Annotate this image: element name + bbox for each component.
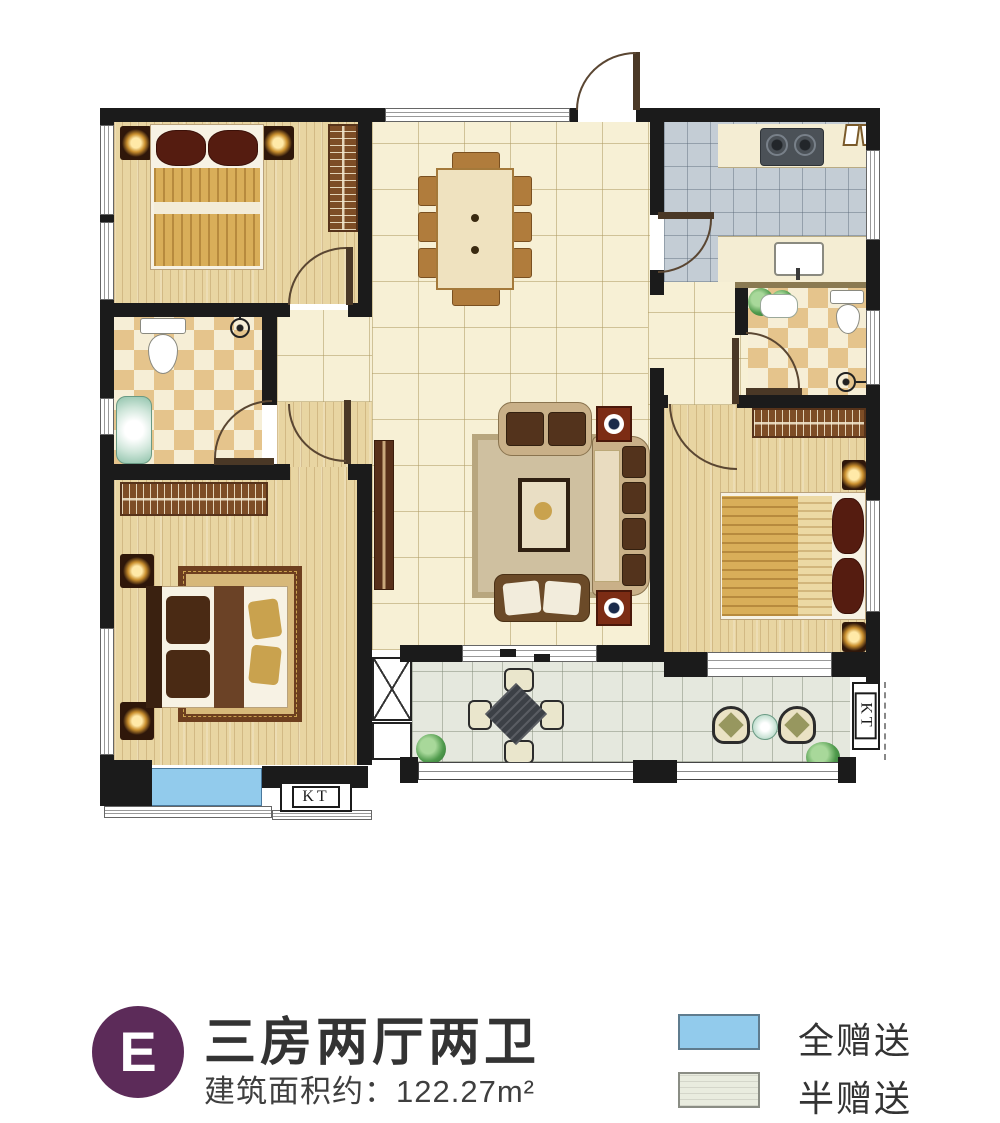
- tv-stand-icon: [374, 440, 394, 590]
- toilet-icon: [140, 318, 186, 334]
- dining-chair: [418, 212, 438, 242]
- hatch-strip: [884, 682, 886, 760]
- wall-segment: [400, 645, 462, 662]
- bench-cushion: [543, 580, 582, 615]
- wall-segment: [100, 215, 114, 222]
- bed-blanket: [722, 496, 798, 616]
- dining-chair: [452, 288, 500, 306]
- plan-area-label: 建筑面积约：122.27m²: [204, 1066, 535, 1111]
- window: [707, 652, 832, 677]
- floor-plan-page: KT KT E 三房两厅两卫 建筑面积约：122.27m² 全赠送 半赠送: [0, 0, 1000, 1123]
- wall-segment: [348, 464, 372, 480]
- wall-segment: [100, 464, 290, 480]
- wall-segment: [735, 288, 748, 335]
- bench-cushion: [502, 580, 541, 616]
- window: [866, 150, 880, 240]
- pillow-icon: [166, 596, 210, 644]
- coffee-table-decor: [534, 502, 552, 520]
- wall-segment: [348, 303, 372, 317]
- wall-segment: [866, 240, 880, 310]
- wall-segment: [650, 122, 664, 215]
- wall-segment: [664, 652, 707, 677]
- legend-label-half-gift: 半赠送: [798, 1070, 912, 1122]
- balcony-sliding-door: [462, 645, 597, 662]
- door-leaf: [214, 458, 274, 465]
- pillow-icon: [832, 498, 864, 554]
- wall-segment: [832, 652, 877, 677]
- nightstand-icon: [842, 460, 866, 490]
- nightstand-icon: [120, 126, 152, 160]
- wall-segment: [400, 757, 418, 783]
- wall-segment: [664, 395, 668, 408]
- window: [385, 108, 570, 122]
- shower-glass-icon: [116, 396, 152, 464]
- wall-segment: [735, 282, 866, 288]
- legend-swatch-half-gift: [678, 1072, 760, 1108]
- wall-segment: [100, 303, 290, 317]
- wall-segment: [838, 757, 856, 783]
- ac-unit-label: KT: [855, 692, 877, 739]
- shower-head-icon: [230, 318, 250, 338]
- sofa-cushion: [622, 482, 646, 514]
- door-leaf: [746, 388, 802, 395]
- wardrobe-icon: [328, 124, 358, 232]
- window: [100, 398, 114, 435]
- wall-segment: [358, 122, 372, 310]
- casement-window-icon: [842, 124, 860, 146]
- dining-table-icon: [436, 168, 514, 290]
- plant-icon: [416, 734, 446, 764]
- window: [866, 500, 880, 612]
- shower-head-icon: [836, 372, 856, 392]
- bay-window-gift-area: [136, 768, 262, 806]
- wall-segment: [597, 645, 664, 662]
- bed-runner: [214, 586, 244, 708]
- hallway-floor: [277, 310, 372, 402]
- legend-swatch-full-gift: [678, 1014, 760, 1050]
- shaft-box: [372, 722, 412, 760]
- bed-blanket: [154, 214, 260, 266]
- window: [100, 628, 114, 755]
- wardrobe-icon: [752, 408, 866, 438]
- door-track-mark: [534, 654, 550, 662]
- wall-segment: [570, 108, 578, 122]
- nightstand-icon: [842, 622, 866, 652]
- wall-segment: [262, 310, 277, 405]
- pillow-icon: [208, 130, 258, 166]
- door-leaf: [346, 247, 353, 305]
- wall-segment: [633, 760, 677, 783]
- ac-unit-label: KT: [292, 786, 339, 808]
- window-sill: [104, 806, 272, 818]
- bed-sheet-fold: [798, 496, 832, 616]
- vanity-sink-icon: [760, 294, 798, 318]
- plant-pot-icon: [604, 414, 624, 434]
- wardrobe-icon: [120, 482, 268, 516]
- round-table-icon: [752, 714, 778, 740]
- entrance-door-arc: [576, 52, 636, 110]
- wall-segment: [357, 467, 372, 765]
- ac-unit-box-left: KT: [280, 782, 352, 812]
- sofa-cushion: [506, 412, 544, 446]
- door-leaf: [732, 338, 739, 404]
- dining-chair: [512, 176, 532, 206]
- ac-unit-box-right: KT: [852, 682, 880, 750]
- dining-chair: [512, 248, 532, 278]
- toilet-icon: [830, 290, 864, 304]
- wall-segment: [636, 108, 880, 122]
- shaft-icon: [372, 657, 412, 721]
- balcony-chair: [504, 740, 534, 764]
- faucet-icon: [796, 268, 800, 280]
- sofa-cushion: [622, 518, 646, 550]
- window: [100, 125, 114, 215]
- pillow-icon: [832, 558, 864, 614]
- stove-burner-icon: [766, 134, 788, 156]
- door-track-mark: [500, 649, 516, 657]
- wall-segment: [100, 108, 385, 122]
- unit-badge-letter: E: [119, 1024, 156, 1080]
- nightstand-icon: [262, 126, 294, 160]
- bed-sheet-fold: [154, 202, 260, 214]
- unit-badge: E: [92, 1006, 184, 1098]
- wall-segment: [650, 270, 664, 295]
- wall-segment: [100, 108, 114, 125]
- bed-headboard: [146, 586, 162, 708]
- window: [100, 222, 114, 300]
- nightstand-icon: [120, 554, 154, 588]
- window: [866, 310, 880, 385]
- plant-pot-icon: [604, 598, 624, 618]
- sofa-seat: [594, 450, 620, 582]
- dining-table-decor: [471, 214, 479, 222]
- wall-segment: [866, 385, 880, 500]
- stove-burner-icon: [794, 134, 816, 156]
- dining-chair: [512, 212, 532, 242]
- sofa-cushion: [548, 412, 586, 446]
- legend-label-full-gift: 全赠送: [798, 1012, 912, 1064]
- wall-segment: [866, 108, 880, 150]
- plan-title: 三房两厅两卫: [204, 1000, 540, 1075]
- wall-segment: [737, 395, 866, 408]
- wall-segment: [650, 368, 664, 652]
- dining-chair: [418, 176, 438, 206]
- bed-runner: [154, 168, 260, 202]
- pillow-icon: [166, 650, 210, 698]
- pillow-icon: [156, 130, 206, 166]
- door-leaf: [658, 212, 714, 219]
- dining-chair: [418, 248, 438, 278]
- sofa-cushion: [622, 446, 646, 478]
- wall-segment: [100, 760, 152, 806]
- dining-table-decor: [471, 246, 479, 254]
- sofa-cushion: [622, 554, 646, 586]
- cushion-icon: [248, 598, 283, 640]
- cushion-icon: [248, 645, 282, 686]
